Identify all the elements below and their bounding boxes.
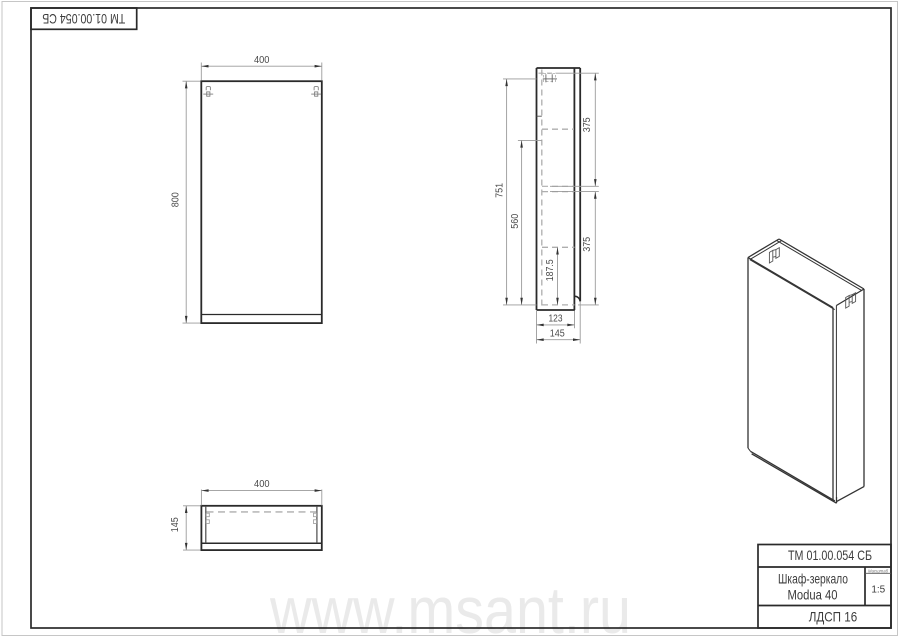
- svg-text:400: 400: [254, 55, 270, 66]
- svg-text:1:5: 1:5: [871, 585, 885, 596]
- svg-text:ТМ 01.00.054 СБ: ТМ 01.00.054 СБ: [788, 547, 872, 563]
- svg-text:Шкаф-зеркало: Шкаф-зеркало: [778, 571, 848, 587]
- svg-text:145: 145: [550, 329, 565, 340]
- svg-text:Modua 40: Modua 40: [788, 587, 838, 603]
- svg-text:187.5: 187.5: [545, 259, 556, 281]
- svg-text:145: 145: [170, 517, 181, 532]
- svg-text:560: 560: [510, 213, 521, 228]
- svg-text:ЛДСП 16: ЛДСП 16: [809, 609, 858, 625]
- svg-text:800: 800: [170, 192, 181, 207]
- svg-text:ТМ 01.00.054 СБ: ТМ 01.00.054 СБ: [42, 11, 125, 26]
- svg-text:Масштаб: Масштаб: [868, 568, 888, 573]
- svg-text:375: 375: [582, 117, 593, 132]
- svg-text:375: 375: [582, 236, 593, 251]
- svg-text:400: 400: [254, 479, 270, 490]
- svg-text:751: 751: [495, 183, 506, 198]
- svg-text:123: 123: [549, 314, 563, 325]
